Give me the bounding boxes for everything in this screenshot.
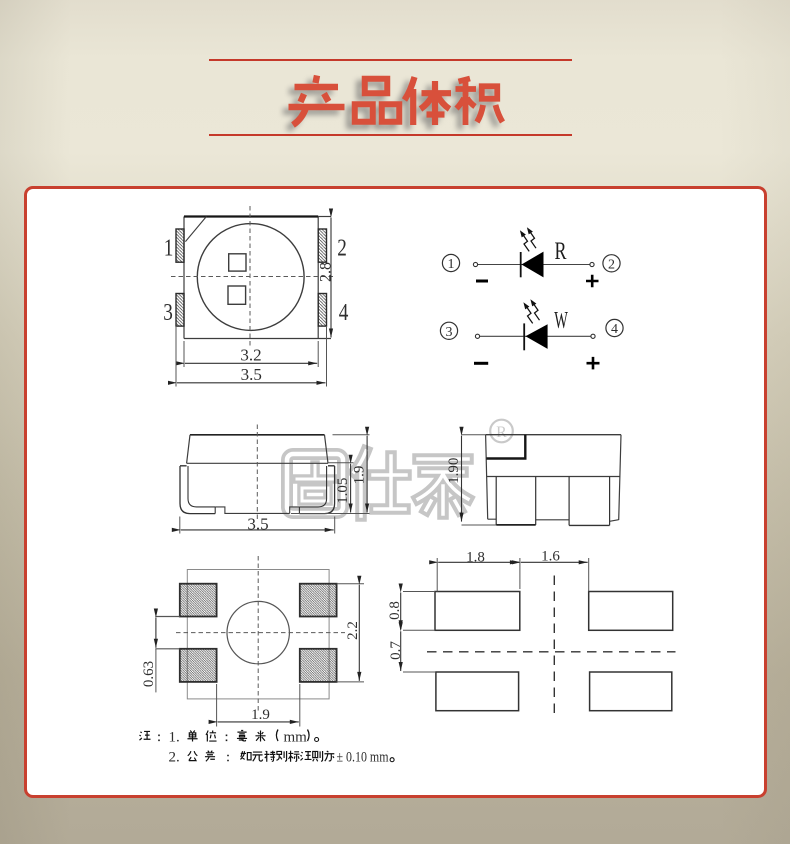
svg-text:mm: mm xyxy=(284,730,308,746)
svg-text:2: 2 xyxy=(337,235,347,262)
svg-text:0.8: 0.8 xyxy=(387,601,403,620)
svg-text:R: R xyxy=(496,424,507,441)
svg-text:2.8: 2.8 xyxy=(318,262,335,282)
svg-text:3: 3 xyxy=(163,299,173,326)
svg-text:1.8: 1.8 xyxy=(466,550,485,566)
svg-text:3.5: 3.5 xyxy=(241,365,262,384)
svg-text:1.6: 1.6 xyxy=(541,549,560,565)
svg-text:1.90: 1.90 xyxy=(446,458,462,484)
svg-text:4: 4 xyxy=(339,299,349,326)
svg-text:1.05: 1.05 xyxy=(335,478,351,504)
svg-text:2.2: 2.2 xyxy=(345,621,361,640)
svg-text:± 0.10 mm: ± 0.10 mm xyxy=(337,750,390,766)
svg-text:1: 1 xyxy=(448,257,455,272)
svg-text:W: W xyxy=(554,308,568,335)
svg-text:1.: 1. xyxy=(169,730,180,746)
svg-text:3.2: 3.2 xyxy=(240,345,261,364)
svg-text:1: 1 xyxy=(164,235,174,262)
svg-text:3.5: 3.5 xyxy=(247,515,268,534)
svg-text:2.: 2. xyxy=(169,750,180,766)
svg-text:0.63: 0.63 xyxy=(141,661,157,687)
svg-text:1.9: 1.9 xyxy=(251,707,270,723)
svg-text:4: 4 xyxy=(611,322,618,337)
svg-text:R: R xyxy=(554,237,566,265)
svg-text:2: 2 xyxy=(608,257,615,272)
svg-text:1.9: 1.9 xyxy=(352,466,368,485)
svg-text:0.7: 0.7 xyxy=(388,641,404,660)
svg-text:3: 3 xyxy=(446,325,453,340)
